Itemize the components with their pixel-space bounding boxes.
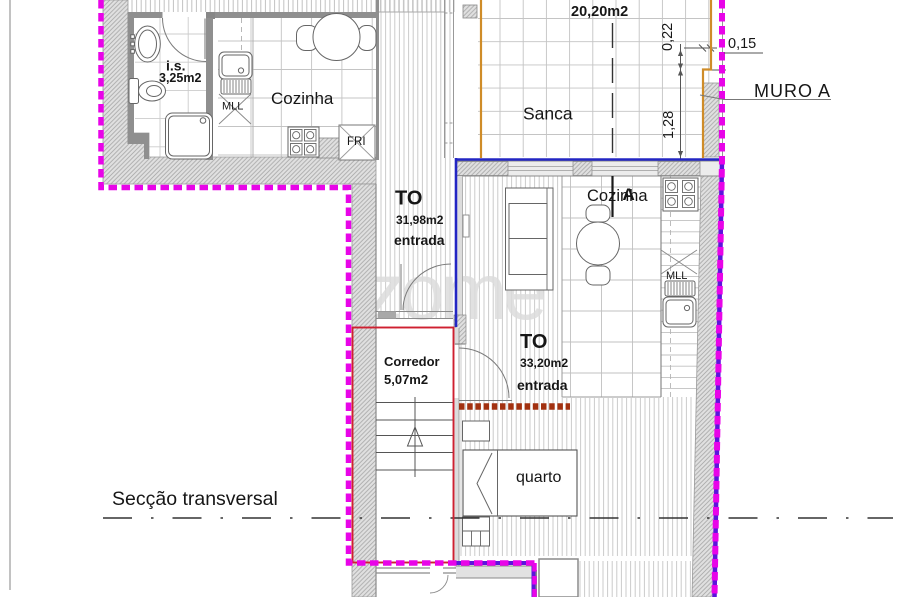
svg-text:A: A <box>623 185 635 204</box>
svg-text:Sanca: Sanca <box>523 104 573 124</box>
svg-text:33,20m2: 33,20m2 <box>520 356 568 370</box>
svg-text:Cozinha: Cozinha <box>271 89 334 108</box>
svg-text:entrada: entrada <box>394 232 445 248</box>
svg-text:MLL: MLL <box>222 101 243 113</box>
svg-text:3,25m2: 3,25m2 <box>159 71 201 85</box>
svg-text:MURO A: MURO A <box>754 81 831 101</box>
svg-text:quarto: quarto <box>516 469 561 486</box>
svg-text:1,28: 1,28 <box>661 111 677 139</box>
svg-text:Corredor: Corredor <box>384 354 440 369</box>
svg-text:Cozinha: Cozinha <box>587 187 648 205</box>
svg-text:Secção transversal: Secção transversal <box>112 488 278 510</box>
svg-text:5,07m2: 5,07m2 <box>384 372 428 387</box>
svg-text:FRI: FRI <box>347 136 366 148</box>
svg-text:entrada: entrada <box>517 377 568 393</box>
svg-text:MLL: MLL <box>666 270 687 282</box>
svg-text:31,98m2: 31,98m2 <box>396 213 444 227</box>
svg-text:0,22: 0,22 <box>660 23 676 51</box>
svg-text:TO: TO <box>520 331 547 353</box>
svg-text:0,15: 0,15 <box>728 36 756 52</box>
svg-text:20,20m2: 20,20m2 <box>571 4 628 20</box>
svg-text:TO: TO <box>395 188 422 210</box>
